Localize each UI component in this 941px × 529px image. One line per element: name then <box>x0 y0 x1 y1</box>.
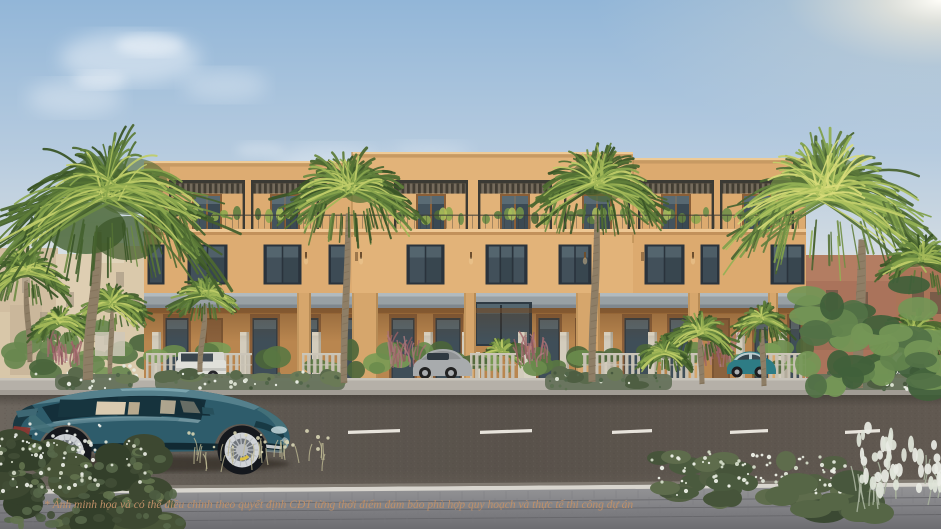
svg-text:* Ảnh minh họa và có thể điều: * Ảnh minh họa và có thể điều chỉnh theo… <box>44 497 633 511</box>
